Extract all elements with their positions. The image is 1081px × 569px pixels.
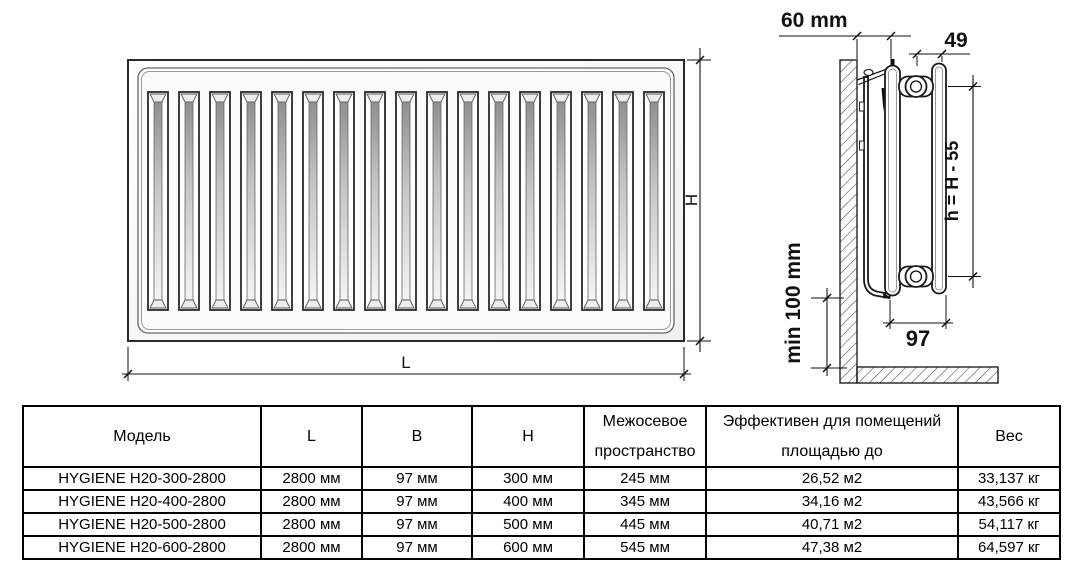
cell-weight: 43,566 кг [958,490,1060,513]
cell-model: HYGIENE H20-500-2800 [23,513,261,536]
bracket-clip [860,102,865,111]
cell-axis-spacing: 445 мм [584,513,706,536]
bracket-clip [860,141,865,150]
dimension-wall-offset: 60 mm [779,9,911,63]
dimension-panel-gap: 49 [909,29,970,66]
floor-section [857,367,998,383]
cell-b: 97 мм [362,513,472,536]
cell-b: 97 мм [362,490,472,513]
spec-table: Модель L B H Межосевое пространство Эффе… [22,405,1061,560]
cell-axis-spacing: 245 мм [584,467,706,490]
dimension-L: L [122,347,691,381]
cell-weight: 54,117 кг [958,513,1060,536]
cell-model: HYGIENE H20-400-2800 [23,490,261,513]
dimension-axis-height: h = H - 55 [942,75,981,288]
table-header-weight: Вес [958,406,1060,467]
cell-h: 500 мм [472,513,584,536]
cell-weight: 64,597 кг [958,536,1060,559]
cell-weight: 33,137 кг [958,467,1060,490]
dimension-depth: 97 [883,295,953,351]
table-header-l: L [261,406,362,467]
table-header-h: H [472,406,584,467]
dimension-H: H [682,48,711,352]
cell-l: 2800 мм [261,513,362,536]
cell-h: 300 мм [472,467,584,490]
table-header-model: Модель [23,406,261,467]
cell-b: 97 мм [362,536,472,559]
table-header-effective-area: Эффективен для помещений площадью до [706,406,958,467]
table-header-axis-spacing: Межосевое пространство [584,406,706,467]
table-row: HYGIENE H20-600-2800 2800 мм 97 мм 600 м… [23,536,1060,559]
dim-label-wall-offset: 60 mm [781,9,848,32]
channel-slots [148,92,664,310]
cell-b: 97 мм [362,467,472,490]
table-header-b: B [362,406,472,467]
dim-label-height: H [682,194,701,206]
wall-section [840,60,857,383]
table-row: HYGIENE H20-300-2800 2800 мм 97 мм 300 м… [23,467,1060,490]
cell-effective-area: 26,52 м2 [706,467,958,490]
cell-model: HYGIENE H20-300-2800 [23,467,261,490]
spec-sheet: H L [0,0,1081,569]
cell-effective-area: 47,38 м2 [706,536,958,559]
cell-h: 400 мм [472,490,584,513]
cell-model: HYGIENE H20-600-2800 [23,536,261,559]
dim-label-depth: 97 [906,326,930,351]
cell-effective-area: 40,71 м2 [706,513,958,536]
radiator-front-view: H L [122,48,711,381]
dim-label-panel-gap: 49 [944,29,967,52]
table-row: HYGIENE H20-400-2800 2800 мм 97 мм 400 м… [23,490,1060,513]
table-header-row: Модель L B H Межосевое пространство Эффе… [23,406,1060,467]
cell-axis-spacing: 545 мм [584,536,706,559]
dim-label-axis-height: h = H - 55 [942,141,962,222]
bottom-header-connector [899,266,933,287]
table-row: HYGIENE H20-500-2800 2800 мм 97 мм 500 м… [23,513,1060,536]
front-water-panel [885,66,900,296]
top-header-connector [899,76,933,97]
cell-h: 600 мм [472,536,584,559]
radiator-side-view: 60 mm 49 [779,9,998,383]
technical-drawing: H L [0,0,1081,400]
cell-axis-spacing: 345 мм [584,490,706,513]
cell-l: 2800 мм [261,490,362,513]
cell-effective-area: 34,16 м2 [706,490,958,513]
dim-label-floor-clearance: min 100 mm [782,242,805,363]
cell-l: 2800 мм [261,536,362,559]
dimension-floor-clearance: min 100 mm [782,242,847,376]
dim-label-length: L [401,353,410,372]
cell-l: 2800 мм [261,467,362,490]
